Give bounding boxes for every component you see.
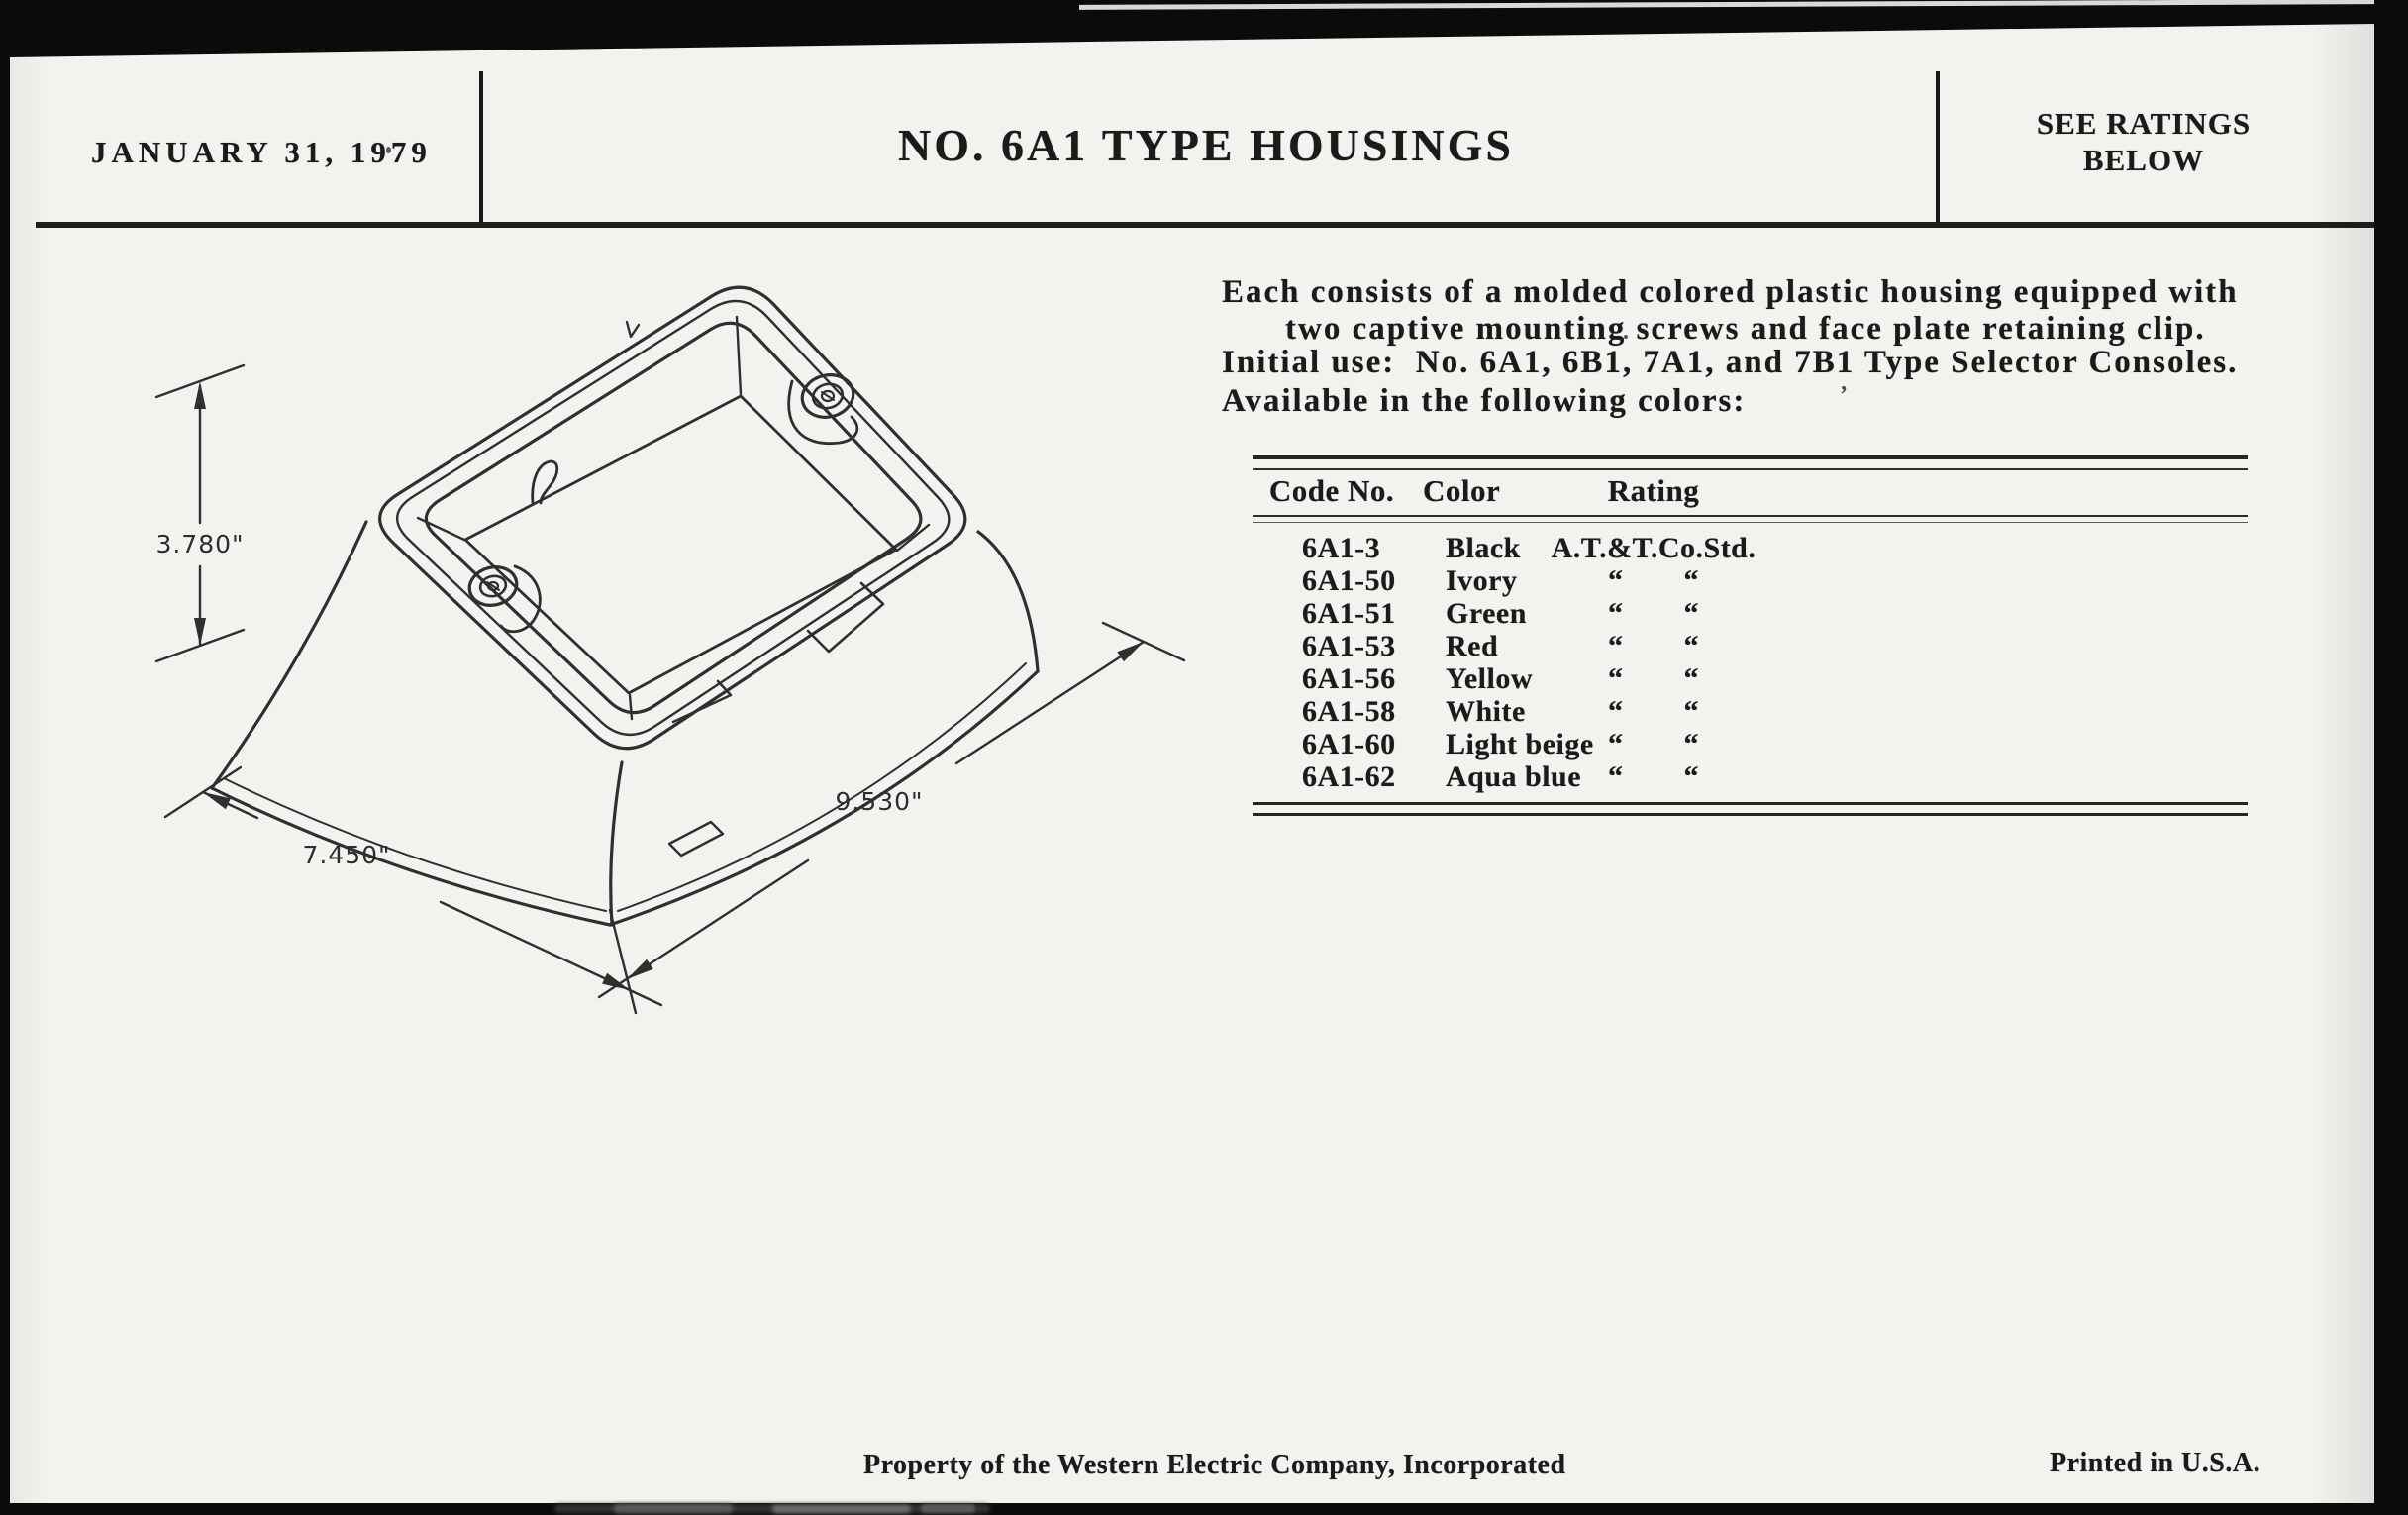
page-title: NO. 6A1 TYPE HOUSINGS [859, 119, 1553, 171]
cell-rating-ditto: “ “ [1550, 564, 1757, 598]
cell-code: 6A1-3 [1302, 532, 1451, 565]
dimension-height-label: 3.780" [155, 530, 244, 558]
dimension-width-label: 9.530" [835, 787, 923, 816]
body-front-corner-edge [611, 762, 622, 925]
table-row: 6A1-51 Green “ “ [1253, 597, 2248, 630]
scan-speck [1624, 335, 1628, 339]
cell-code: 6A1-62 [1302, 760, 1451, 794]
description-line4: Available in the following colors: [1222, 383, 1746, 420]
description-line2: two captive mounting screws and face pla… [1285, 311, 2206, 348]
scan-mark: ’ [1840, 382, 1848, 409]
scan-smudge [772, 1505, 911, 1513]
footer-property-note: Property of the Western Electric Company… [863, 1450, 1566, 1481]
column-header-rating: Rating [1550, 473, 1757, 509]
cell-rating-ditto: “ “ [1550, 597, 1757, 631]
scanned-sheet: JANUARY 31, 1979 NO. 6A1 TYPE HOUSINGS S… [0, 0, 2408, 1515]
table-row: 6A1-3 Black A.T.&T.Co.Std. [1253, 532, 2248, 564]
cell-code: 6A1-50 [1302, 564, 1451, 598]
body-right-wall [978, 532, 1038, 671]
cell-rating-ditto: “ “ [1550, 728, 1757, 761]
body-left-wall [212, 522, 366, 788]
table-row: 6A1-53 Red “ “ [1253, 630, 2248, 662]
table-rule-top [1253, 455, 2248, 470]
scan-smudge [921, 1504, 975, 1513]
cell-code: 6A1-56 [1302, 662, 1451, 696]
dimension-height [156, 365, 244, 661]
cell-rating: A.T.&T.Co.Std. [1550, 532, 1757, 565]
table-row: 6A1-50 Ivory “ “ [1253, 564, 2248, 597]
dimension-width [599, 623, 1184, 1013]
column-header-color: Color [1423, 473, 1500, 509]
cell-rating-ditto: “ “ [1550, 630, 1757, 663]
ratings-note-line1: SEE RATINGS [2010, 105, 2277, 142]
rim-notch [627, 322, 639, 337]
header-divider-right [1936, 71, 1940, 224]
interior-corner-lines [418, 317, 929, 719]
table-row: 6A1-60 Light beige “ “ [1253, 728, 2248, 760]
cell-rating-ditto: “ “ [1550, 760, 1757, 794]
table-rule-bottom [1253, 802, 2248, 816]
table-row: 6A1-62 Aqua blue “ “ [1253, 760, 2248, 793]
description-line3: Initial use: No. 6A1, 6B1, 7A1, and 7B1 … [1222, 345, 2238, 381]
dimension-depth-label: 7.450" [302, 841, 390, 869]
scan-edge-sliver [1079, 0, 2374, 10]
table-row: 6A1-58 White “ “ [1253, 695, 2248, 728]
housing-outer-rim [380, 287, 965, 749]
cell-rating-ditto: “ “ [1550, 695, 1757, 729]
ratings-note: SEE RATINGS BELOW [2010, 105, 2277, 178]
cell-code: 6A1-58 [1302, 695, 1451, 729]
ratings-note-line2: BELOW [2010, 142, 2277, 178]
cell-code: 6A1-60 [1302, 728, 1451, 761]
table-rule-header [1253, 515, 2248, 523]
scan-smudge [614, 1504, 733, 1513]
clip-slot-front [669, 822, 723, 856]
header-divider-left [479, 71, 483, 224]
document-date: JANUARY 31, 1979 [91, 135, 432, 170]
cell-rating-ditto: “ “ [1550, 662, 1757, 696]
housing-isometric-drawing: 3.780" 7.450" 9.530" [99, 238, 1238, 1030]
cell-code: 6A1-51 [1302, 597, 1451, 631]
color-rating-table: Code No. Color Rating 6A1-3 Black A.T.&T… [1253, 455, 2248, 814]
scan-speck [386, 147, 391, 153]
document-page: JANUARY 31, 1979 NO. 6A1 TYPE HOUSINGS S… [0, 0, 2408, 1515]
description-line1: Each consists of a molded colored plasti… [1222, 274, 2239, 311]
table-row: 6A1-56 Yellow “ “ [1253, 662, 2248, 695]
cell-code: 6A1-53 [1302, 630, 1451, 663]
header-rule [36, 222, 2374, 228]
footer-printed-note: Printed in U.S.A. [2050, 1448, 2260, 1479]
column-header-code: Code No. [1253, 473, 1411, 509]
